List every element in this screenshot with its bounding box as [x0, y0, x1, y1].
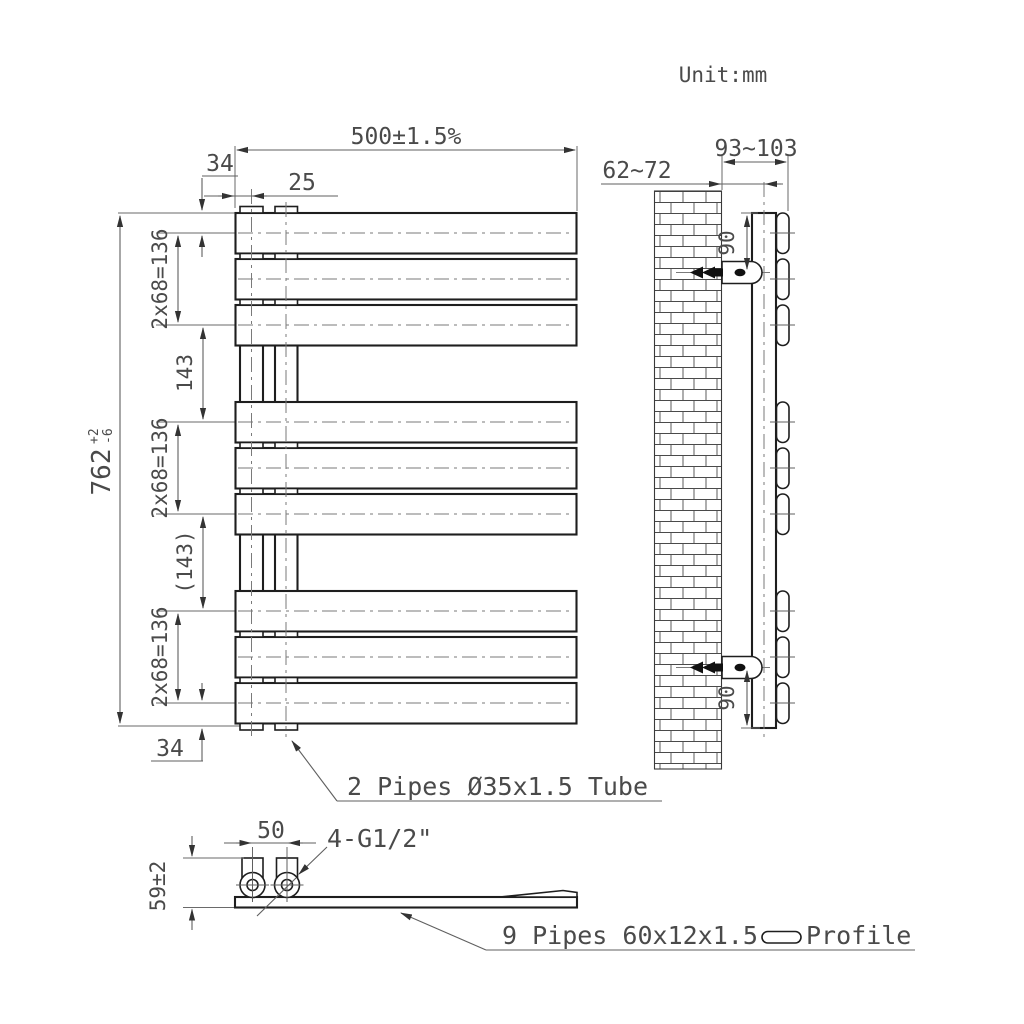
dim-gap-top-label: 143 [173, 354, 197, 392]
dim-top-offset-label: 34 [206, 151, 234, 177]
bracket-bolt-slot [735, 664, 746, 672]
dim-bottom-offset-label: 34 [156, 736, 184, 762]
dim-width: 500±1.5% [237, 124, 575, 150]
dim-wall-to-front: 93~103 [714, 136, 797, 211]
dim-connector-height-label: 59±2 [146, 861, 170, 912]
side-view: 90 90 62~72 93~103 [601, 136, 798, 769]
dim-pipe-inset-label: 25 [288, 170, 316, 196]
profile-shape-icon [762, 932, 801, 944]
dim-pipe-spacing: 50 [224, 818, 316, 856]
dim-wall-clearance-label: 62~72 [602, 158, 671, 184]
front-view: 500±1.5% 34 25 762 +2 -6 [87, 124, 662, 801]
dim-height-value: 762 [87, 449, 117, 496]
profile-suffix-label: Profile [806, 921, 911, 950]
profile-note-label: 9 Pipes 60x12x1.5 [502, 921, 758, 950]
dim-group-top-label: 2x68=136 [148, 228, 172, 329]
dim-height-tol-minus: -6 [101, 428, 116, 444]
dim-bracket-bottom-label: 90 [715, 685, 739, 710]
thread-note-label: 4-G1/2" [327, 824, 432, 853]
unit-label: Unit:mm [679, 63, 768, 87]
dim-group-bottom-label: 2x68=136 [148, 606, 172, 707]
dim-height: 762 +2 -6 [87, 216, 120, 723]
dim-bracket-top-label: 90 [715, 230, 739, 255]
dim-groups: 2x68=136 2x68=136 2x68=136 [148, 228, 178, 707]
profile-bar-tip [500, 891, 577, 898]
bottom-view: 50 59±2 4-G1/2" 9 Pipes 60x12x1.5 Profil… [146, 818, 915, 950]
wall-section [655, 191, 722, 769]
technical-drawing-page: Unit:mm [0, 0, 1024, 1024]
bracket-bolt-slot [735, 269, 746, 277]
dim-wall-to-front-label: 93~103 [714, 136, 797, 162]
radiator-drawing: Unit:mm [0, 0, 1024, 1024]
pipe-note: 2 Pipes Ø35x1.5 Tube [292, 741, 662, 801]
dim-pipe-spacing-label: 50 [257, 818, 285, 844]
pipe-connections [236, 851, 304, 902]
dim-width-label: 500±1.5% [351, 124, 462, 150]
dim-gap-bottom-label: (143) [173, 530, 197, 593]
pipe-note-label: 2 Pipes Ø35x1.5 Tube [347, 772, 648, 801]
dim-top-offset: 34 [202, 151, 238, 257]
dim-connector-height: 59±2 [146, 836, 244, 930]
profile-bar [235, 897, 577, 908]
dim-group-middle-label: 2x68=136 [148, 417, 172, 518]
profile-note: 9 Pipes 60x12x1.5 Profile [401, 913, 915, 950]
dim-height-tol-plus: +2 [87, 428, 102, 444]
